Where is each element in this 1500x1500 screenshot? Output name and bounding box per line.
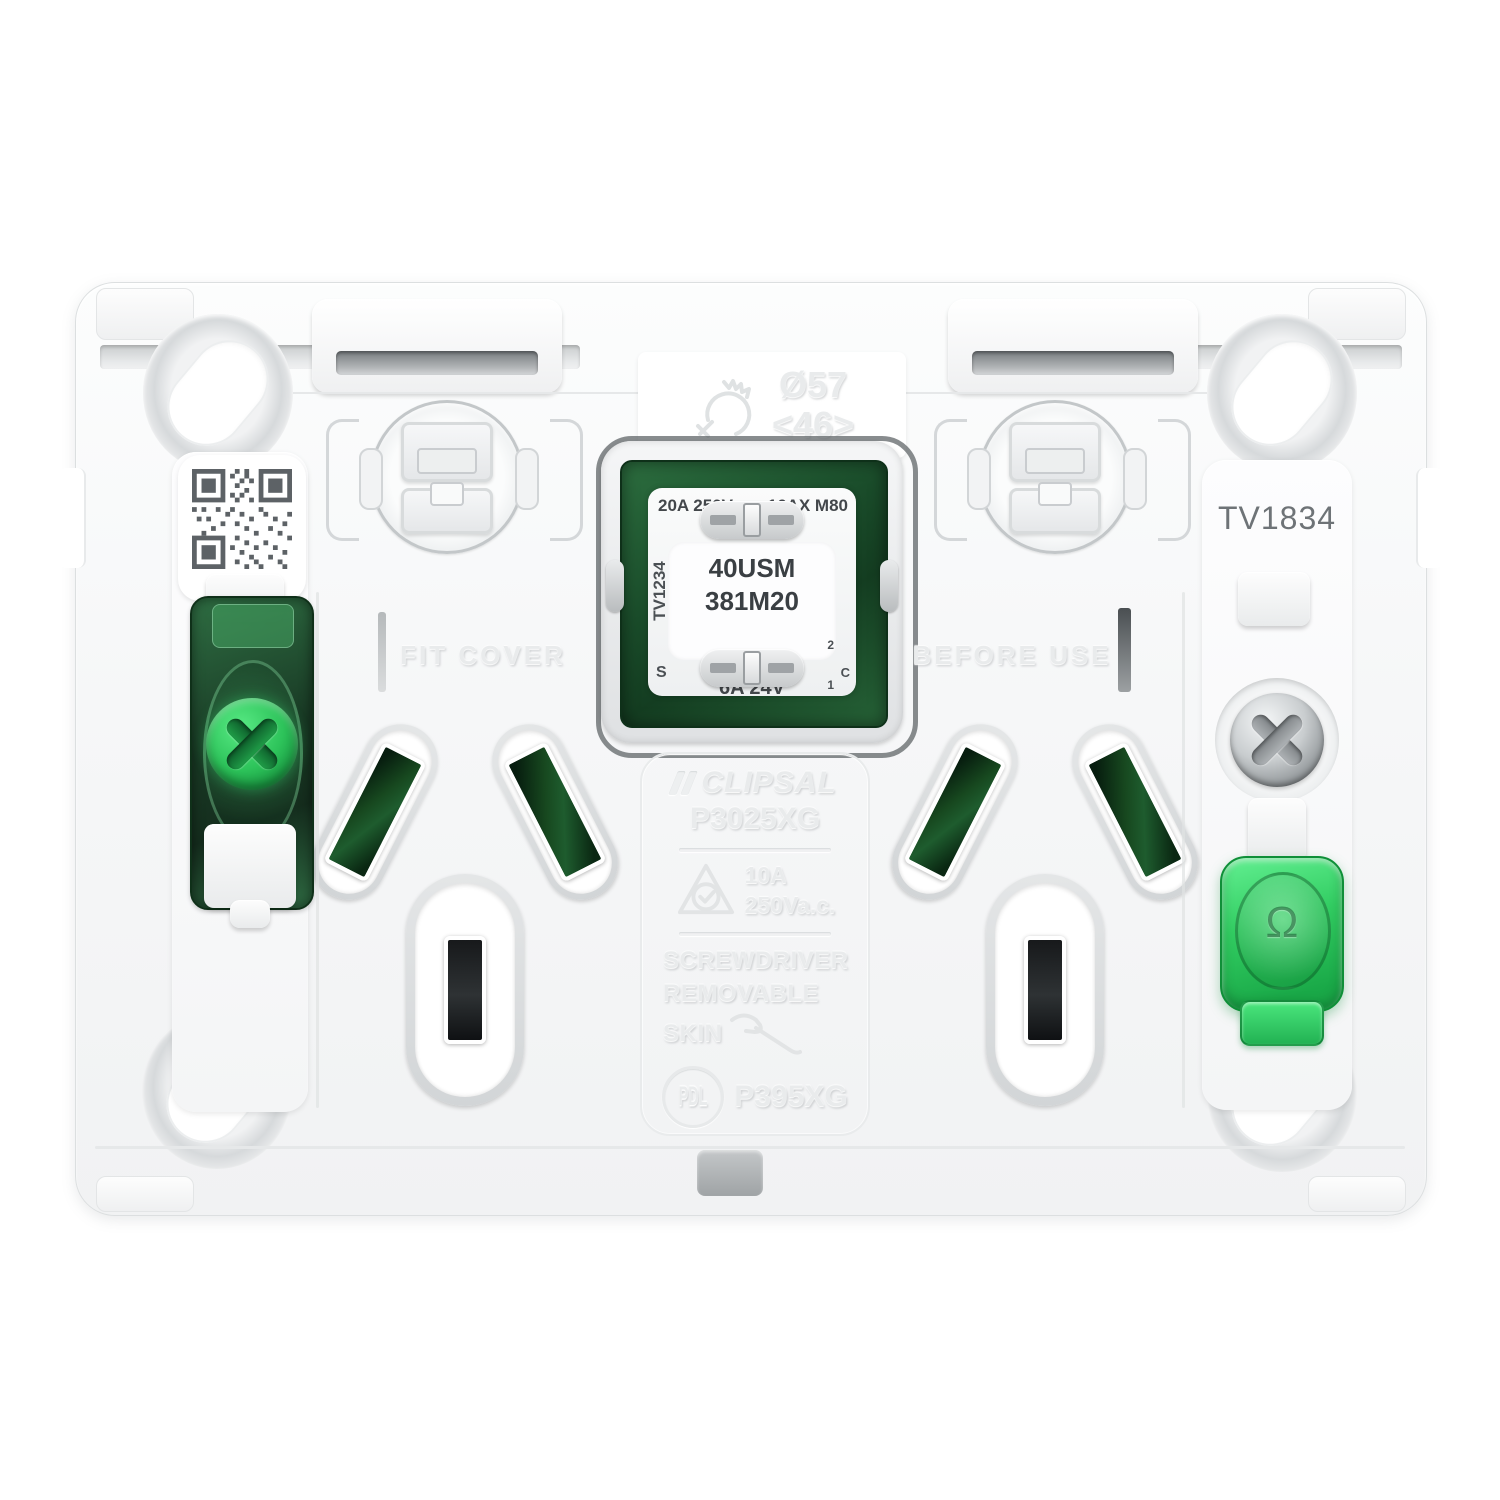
white-latch: [204, 824, 296, 908]
electrical-rating: 10A 250Va.c.: [745, 860, 836, 920]
clip-slot: [972, 351, 1174, 375]
mech-tab-inner: [1025, 448, 1085, 474]
mech-ear: [515, 448, 539, 510]
removal-line1: SCREWDRIVER: [663, 944, 847, 977]
mounting-hole-top-left: [143, 314, 293, 472]
note-before-use: BEFORE USE: [902, 640, 1122, 671]
pdl-logo: PDL: [662, 1066, 724, 1128]
mech-ear: [359, 448, 383, 510]
module-model-line1: 40USM: [668, 542, 836, 585]
divider: [679, 932, 831, 936]
rocker-flap: [1240, 1000, 1324, 1046]
module-model-card: 40USM 381M20: [668, 542, 836, 660]
switch-mech-aperture-left: [370, 400, 524, 554]
socket1-earth-slot: [406, 874, 524, 1106]
slot-opening: [1024, 936, 1066, 1044]
switch-mech-aperture-right: [978, 400, 1132, 554]
corner-tab-bottom-left: [96, 1176, 194, 1212]
clipsal-slashes-icon: [673, 771, 693, 795]
white-latch-foot: [230, 900, 270, 928]
screw-post: [743, 651, 761, 685]
clip-tab: [1238, 572, 1310, 626]
plate-seam-bottom: [95, 1146, 1405, 1149]
wall-screw: [1230, 693, 1324, 787]
screw-wing: [710, 515, 736, 525]
mounting-hole-opening: [1215, 324, 1348, 461]
hinge-block: [1248, 798, 1306, 862]
rating-current: 10A: [745, 860, 836, 890]
mounting-hole-opening: [151, 324, 284, 461]
screw-wing: [768, 515, 794, 525]
green-captive-screw: [206, 698, 298, 790]
clipsal-logo: CLIPSAL: [673, 766, 836, 800]
bay-seam-left: [378, 612, 386, 692]
hole-saw-icon: [690, 368, 760, 442]
product-render: Ø57 <46> 20A 250V 16AX M80 4: [0, 0, 1500, 1500]
terminal-screw-top: [700, 501, 804, 539]
rcm-mark-icon: [675, 861, 737, 919]
bay-groove-left: [316, 592, 319, 1108]
mech-tab-bottom: [1009, 488, 1101, 534]
note-fit-cover: FIT COVER: [373, 640, 593, 671]
removal-line3: SKIN: [663, 1017, 722, 1050]
edge-notch-left: [58, 468, 86, 568]
socket2-earth-slot: [986, 874, 1104, 1106]
mech-ear: [967, 448, 991, 510]
mech-ear: [1123, 448, 1147, 510]
grid-code: P3025XG: [690, 802, 820, 836]
rocker-symbol: Ω: [1222, 898, 1342, 948]
pdl-row: PDL P395XG: [662, 1066, 847, 1128]
module-side-pin-right: [880, 560, 898, 612]
tv-code: TV1834: [1202, 500, 1352, 537]
bracket-icon: [326, 419, 359, 541]
mounting-clip-right: [948, 299, 1198, 393]
screw-wing: [710, 663, 736, 673]
green-switch-rocker: Ω: [1220, 856, 1344, 1012]
mech-tab-top: [1009, 422, 1101, 482]
bottom-center-tab: [697, 1150, 763, 1196]
edge-notch-right: [1416, 468, 1444, 568]
screwdriver-icon: [726, 1010, 810, 1056]
bracket-icon: [934, 419, 967, 541]
slot-opening: [444, 936, 486, 1044]
branding-panel: CLIPSAL P3025XG 10A 250Va.c. SCREWDRIVER…: [640, 752, 870, 1136]
corner-tab-bottom-right: [1308, 1176, 1406, 1212]
terminal-label-2: 2: [827, 638, 834, 652]
mech-tab-bottom: [401, 488, 493, 534]
screw-post: [743, 503, 761, 537]
terminal-screw-bottom: [700, 649, 804, 687]
mech-tab-notch: [1038, 482, 1072, 506]
rating-row: 10A 250Va.c.: [675, 860, 836, 920]
mech-tab-top: [401, 422, 493, 482]
green-clip-window: [212, 604, 294, 648]
mounting-clip-left: [312, 299, 562, 393]
mounting-hole-top-right: [1207, 314, 1357, 472]
module-side-pin-left: [606, 560, 624, 612]
brand-name: CLIPSAL: [701, 766, 836, 800]
bracket-icon: [1158, 419, 1191, 541]
drill-diameter: Ø57: [772, 365, 854, 405]
divider: [679, 848, 831, 852]
mech-tab-notch: [430, 482, 464, 506]
mech-tab-inner: [417, 448, 477, 474]
drill-size-text: Ø57 <46>: [772, 365, 854, 445]
bay-seam-right: [1118, 608, 1131, 692]
rating-voltage: 250Va.c.: [745, 890, 836, 920]
module-model-line2: 381M20: [668, 585, 836, 618]
bay-groove-right: [1182, 592, 1185, 1108]
removal-note: SCREWDRIVER REMOVABLE SKIN: [663, 944, 847, 1056]
removal-line2: REMOVABLE: [663, 977, 847, 1010]
bracket-icon: [550, 419, 583, 541]
qr-code: [192, 469, 292, 569]
skin-code: P395XG: [734, 1080, 847, 1114]
clip-slot: [336, 351, 538, 375]
screw-wing: [768, 663, 794, 673]
pdl-logo-text: PDL: [679, 1081, 708, 1112]
module-side-code: TV1234: [650, 526, 670, 656]
